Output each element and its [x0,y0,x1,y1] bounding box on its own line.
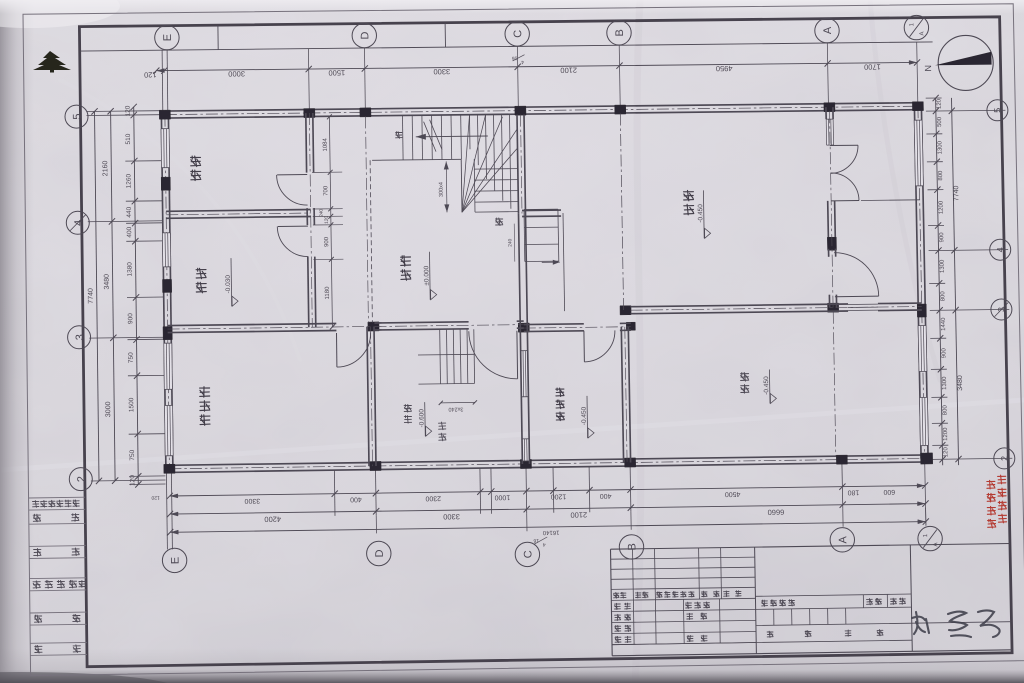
svg-text:240: 240 [507,238,513,246]
svg-text:2100: 2100 [560,66,577,75]
svg-text:800: 800 [943,405,949,416]
svg-text:D: D [359,31,371,39]
svg-text:120: 120 [144,70,157,79]
svg-text:±0.000: ±0.000 [423,265,430,285]
svg-text:120: 120 [129,475,136,486]
svg-text:-0.450: -0.450 [581,406,588,425]
svg-text:120: 120 [324,215,330,223]
svg-text:E: E [170,557,182,565]
svg-text:1300: 1300 [940,259,946,273]
svg-text:3: 3 [74,334,86,340]
svg-text:2300: 2300 [425,494,441,501]
svg-text:2100: 2100 [570,510,587,519]
svg-text:3480: 3480 [957,375,964,391]
svg-text:4500: 4500 [725,490,741,497]
svg-text:120: 120 [151,494,160,500]
svg-text:4: 4 [995,247,1005,252]
svg-text:800: 800 [938,170,944,181]
svg-text:-0.450: -0.450 [763,376,770,395]
svg-text:7740: 7740 [953,185,960,201]
svg-text:4200: 4200 [264,515,281,524]
svg-text:6660: 6660 [768,508,785,517]
svg-text:5: 5 [992,108,1002,113]
svg-text:600: 600 [883,488,895,495]
svg-text:A: A [822,26,834,34]
svg-text:3300: 3300 [433,67,450,76]
svg-text:240: 240 [319,209,325,217]
svg-text:1700: 1700 [864,62,881,71]
svg-text:750: 750 [128,352,135,363]
svg-text:3300: 3300 [244,497,260,504]
svg-text:1440: 1440 [941,317,947,331]
svg-text:1200: 1200 [939,200,945,214]
svg-text:D: D [374,549,386,557]
svg-text:500: 500 [937,116,943,127]
svg-text:A: A [933,542,939,546]
svg-text:A: A [919,31,925,35]
svg-text:4950: 4950 [716,64,733,73]
svg-text:400: 400 [600,492,612,499]
svg-text:4: 4 [73,220,85,226]
svg-text:3300: 3300 [443,512,460,521]
svg-text:800: 800 [940,291,946,302]
svg-text:1000: 1000 [494,493,510,500]
svg-text:1500: 1500 [128,397,135,412]
svg-text:1084: 1084 [323,137,329,151]
svg-text:5: 5 [71,114,83,120]
svg-text:900: 900 [324,236,330,247]
svg-text:A: A [837,535,849,543]
svg-text:16140: 16140 [542,529,559,535]
svg-text:7740: 7740 [88,288,95,304]
svg-text:2160: 2160 [102,160,109,176]
svg-text:180: 180 [847,488,859,495]
svg-text:B: B [614,29,626,36]
svg-text:4: 4 [543,541,546,547]
svg-text:510: 510 [125,133,132,144]
svg-text:1500: 1500 [328,68,345,77]
svg-text:750: 750 [129,449,136,460]
svg-text:1260: 1260 [126,173,133,188]
svg-text:3000: 3000 [228,69,245,78]
svg-text:2: 2 [999,456,1009,461]
svg-text:3000: 3000 [105,401,112,417]
svg-text:700: 700 [323,185,329,196]
svg-text:900: 900 [941,348,947,359]
svg-text:300x4: 300x4 [439,182,445,197]
svg-text:1200: 1200 [551,492,567,499]
svg-text:900: 900 [127,313,134,324]
svg-text:900: 900 [939,232,945,243]
svg-text:C: C [522,550,534,558]
svg-text:B: B [626,543,638,551]
svg-text:3x240: 3x240 [448,406,463,412]
svg-text:1200: 1200 [943,427,949,441]
svg-text:400: 400 [126,226,133,237]
svg-text:1300: 1300 [938,140,944,154]
svg-text:3480: 3480 [104,274,111,290]
svg-text:-0.450: -0.450 [697,204,704,223]
svg-text:120: 120 [943,447,949,458]
svg-text:-0.030: -0.030 [225,275,232,294]
svg-text:N: N [923,65,933,72]
svg-text:1180: 1180 [325,286,331,300]
svg-text:E: E [162,34,174,41]
svg-text:4: 4 [521,59,524,65]
svg-text:120: 120 [937,98,943,109]
svg-text:440: 440 [126,206,133,217]
svg-text:C: C [512,30,524,38]
svg-text:1380: 1380 [127,262,134,277]
svg-text:-0.600: -0.600 [418,409,425,428]
svg-text:400: 400 [350,495,362,502]
svg-text:2: 2 [76,476,88,482]
svg-text:120: 120 [125,105,132,116]
svg-text:1300: 1300 [942,376,948,390]
